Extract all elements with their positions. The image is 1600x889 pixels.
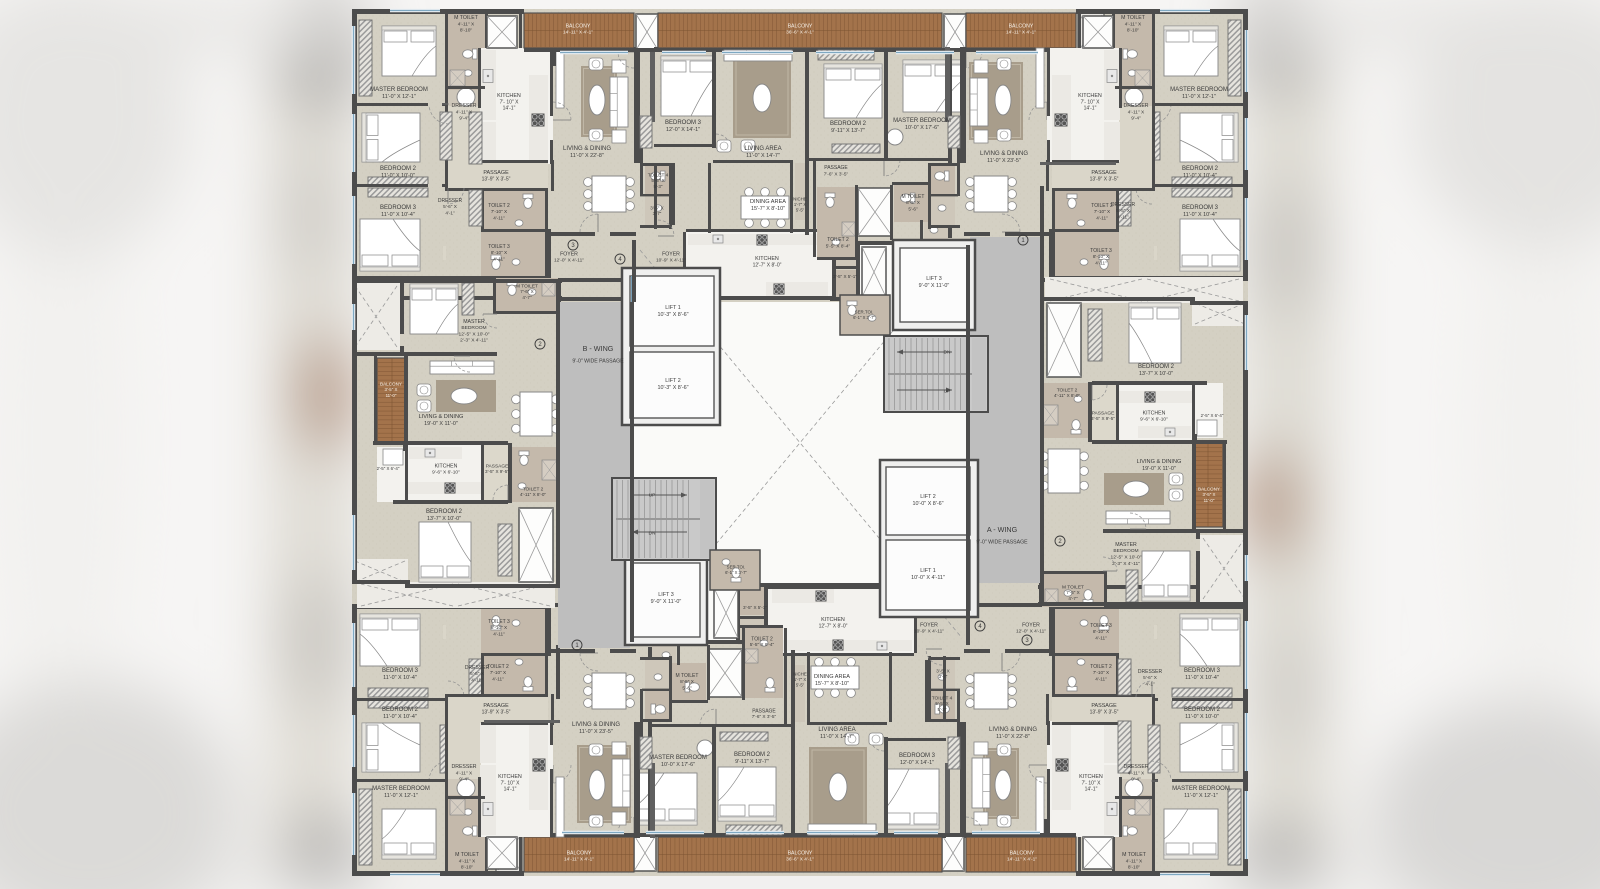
svg-text:14'-1": 14'-1": [504, 787, 517, 793]
svg-text:7'- 10" X: 7'- 10" X: [1082, 780, 1102, 786]
svg-text:5'-5" X 8'-4": 5'-5" X 8'-4": [750, 642, 775, 647]
svg-text:FOYER: FOYER: [920, 622, 938, 628]
svg-text:PASSAGE: PASSAGE: [824, 165, 848, 171]
svg-text:15'-7" X 8'-10": 15'-7" X 8'-10": [751, 206, 785, 212]
svg-text:9'-0" X 11'-0": 9'-0" X 11'-0": [919, 283, 950, 289]
svg-text:7'-6" X: 7'-6" X: [520, 289, 534, 294]
svg-text:14'-11" X 4'-1": 14'-11" X 4'-1": [563, 29, 593, 35]
svg-text:14'-11" X 4'-1": 14'-11" X 4'-1": [564, 856, 594, 862]
svg-text:4'-11" X: 4'-11" X: [1128, 770, 1145, 776]
svg-text:8'-10" X: 8'-10" X: [491, 250, 508, 255]
svg-text:9'-0" WIDE PASSAGE: 9'-0" WIDE PASSAGE: [976, 539, 1028, 545]
svg-text:NICHE: NICHE: [793, 197, 807, 202]
svg-text:7'-6" X: 7'-6" X: [1066, 590, 1080, 595]
svg-text:4'-11": 4'-11": [1095, 635, 1107, 640]
svg-text:1'-7" X: 1'-7" X: [794, 202, 807, 207]
svg-text:4'-1": 4'-1": [1145, 681, 1155, 686]
svg-text:BEDROOM 3: BEDROOM 3: [382, 668, 419, 674]
svg-text:LIVING & DINING: LIVING & DINING: [563, 146, 611, 152]
svg-text:10'-3" X 8'-6": 10'-3" X 8'-6": [657, 312, 688, 318]
svg-text:BALCONY: BALCONY: [566, 23, 591, 29]
svg-text:9'-6" X 6'-10": 9'-6" X 6'-10": [432, 469, 460, 475]
svg-text:10'-9" X 4'-11": 10'-9" X 4'-11": [656, 257, 686, 263]
svg-text:4'-11": 4'-11": [493, 631, 505, 636]
svg-text:BALCONY: BALCONY: [1010, 850, 1035, 856]
svg-text:11'-0" X 10'-0": 11'-0" X 10'-0": [1185, 714, 1219, 720]
svg-text:3'-5" X 9'-5": 3'-5" X 9'-5": [1091, 416, 1115, 421]
svg-text:M TOILET: M TOILET: [1121, 15, 1146, 21]
svg-text:14'-1": 14'-1": [1085, 787, 1098, 793]
svg-text:5'-5": 5'-5": [796, 208, 805, 213]
svg-text:PASSAGE: PASSAGE: [1091, 703, 1117, 709]
svg-text:12'-0" X 4'-11": 12'-0" X 4'-11": [554, 257, 584, 263]
svg-text:9'-0" WIDE PASSAGE: 9'-0" WIDE PASSAGE: [572, 358, 624, 364]
svg-text:11'-0" X 12'-1": 11'-0" X 12'-1": [384, 793, 418, 799]
svg-text:LIVING AREA: LIVING AREA: [744, 146, 781, 152]
svg-text:KITCHEN: KITCHEN: [821, 617, 845, 623]
svg-text:11'-0" X 12'-1": 11'-0" X 12'-1": [1182, 94, 1216, 100]
svg-text:KITCHEN: KITCHEN: [498, 774, 522, 780]
svg-text:BEDROOM 2: BEDROOM 2: [382, 707, 419, 713]
svg-text:8'-10": 8'-10": [461, 864, 474, 870]
svg-text:5'-5": 5'-5": [796, 683, 805, 688]
svg-text:BEDROOM 2: BEDROOM 2: [1184, 707, 1221, 713]
svg-text:11'-0" X 12'-1": 11'-0" X 12'-1": [382, 94, 416, 100]
svg-text:KITCHEN: KITCHEN: [1078, 93, 1102, 99]
svg-text:MASTER: MASTER: [1115, 542, 1137, 548]
svg-text:TOILET 2: TOILET 2: [827, 237, 849, 243]
svg-text:11'-0" X 10'-4": 11'-0" X 10'-4": [1183, 173, 1217, 179]
svg-text:LIFT 1: LIFT 1: [665, 305, 680, 311]
svg-text:4'-7": 4'-7": [1068, 596, 1078, 601]
svg-text:3'-7": 3'-7": [939, 674, 948, 679]
svg-text:3'-5" X: 3'-5" X: [650, 205, 664, 210]
svg-text:LIFT 2: LIFT 2: [665, 378, 680, 384]
svg-text:DINING AREA: DINING AREA: [814, 674, 850, 680]
svg-text:11'-0" X 10'-4": 11'-0" X 10'-4": [1185, 675, 1219, 681]
svg-text:9'-4": 9'-4": [459, 115, 469, 121]
svg-text:3'-5" X 5'-1": 3'-5" X 5'-1": [833, 274, 857, 279]
svg-text:11'-0" X 10'-4": 11'-0" X 10'-4": [383, 675, 417, 681]
svg-text:FOYER: FOYER: [662, 251, 680, 257]
svg-text:BALCONY: BALCONY: [567, 850, 592, 856]
svg-text:UP: UP: [944, 388, 951, 394]
svg-text:4'-11": 4'-11": [1095, 260, 1107, 265]
svg-text:10'-3" X 8'-6": 10'-3" X 8'-6": [657, 385, 688, 391]
svg-text:LIFT 1: LIFT 1: [920, 568, 935, 574]
svg-text:4'-11" X: 4'-11" X: [1128, 109, 1145, 115]
svg-text:9'-0" X 11'-0": 9'-0" X 11'-0": [651, 599, 682, 605]
svg-text:FOYER: FOYER: [1022, 622, 1040, 628]
svg-text:8'-10" X: 8'-10" X: [1093, 254, 1110, 259]
svg-text:PASSAGE: PASSAGE: [483, 703, 509, 709]
svg-text:12'-0" X 4'-11": 12'-0" X 4'-11": [1016, 628, 1046, 634]
svg-text:LIVING & DINING: LIVING & DINING: [572, 722, 620, 728]
svg-text:5'-6": 5'-6": [908, 206, 918, 211]
svg-text:UP: UP: [649, 492, 656, 498]
svg-text:KITCHEN: KITCHEN: [755, 256, 779, 262]
svg-text:MASTER BEDROOM: MASTER BEDROOM: [1170, 87, 1228, 93]
svg-text:8'-10" X: 8'-10" X: [1093, 629, 1110, 634]
svg-text:8'-5" X: 8'-5" X: [906, 200, 921, 205]
svg-text:MASTER BEDROOM: MASTER BEDROOM: [893, 118, 951, 124]
svg-text:BEDROOM: BEDROOM: [461, 325, 486, 331]
svg-text:BEDROOM 3: BEDROOM 3: [899, 753, 936, 759]
svg-text:LIVING & DINING: LIVING & DINING: [1137, 459, 1182, 465]
svg-text:LIVING AREA: LIVING AREA: [818, 727, 855, 733]
svg-text:13'-7" X 10'-0": 13'-7" X 10'-0": [1139, 371, 1173, 377]
svg-text:10'-9" X 4'-11": 10'-9" X 4'-11": [914, 628, 944, 634]
svg-text:4'-1": 4'-1": [445, 210, 455, 215]
svg-text:BALCONY: BALCONY: [1198, 486, 1220, 491]
svg-text:BEDROOM 2: BEDROOM 2: [380, 166, 417, 172]
svg-text:8'-5" X: 8'-5" X: [680, 679, 695, 684]
svg-text:DN: DN: [944, 349, 951, 355]
svg-text:14'-1": 14'-1": [503, 106, 516, 112]
svg-text:15'-7" X 8'-10": 15'-7" X 8'-10": [815, 681, 849, 687]
svg-text:M TOILET: M TOILET: [1122, 852, 1147, 858]
svg-text:9'-11" X 13'-7": 9'-11" X 13'-7": [735, 759, 769, 765]
svg-text:MASTER BEDROOM: MASTER BEDROOM: [370, 87, 428, 93]
svg-text:DRESSER: DRESSER: [1123, 103, 1148, 109]
svg-text:10'-0" X 17'-6": 10'-0" X 17'-6": [661, 762, 695, 768]
svg-text:5'-5" X: 5'-5" X: [935, 701, 948, 706]
svg-text:LIFT 3: LIFT 3: [926, 276, 941, 282]
svg-text:KITCHEN: KITCHEN: [435, 463, 458, 469]
svg-text:3'-5" X 9'-5": 3'-5" X 9'-5": [485, 469, 509, 474]
svg-text:5'-5" X 8'-4": 5'-5" X 8'-4": [826, 243, 851, 248]
svg-text:36'-6" X 4'-1": 36'-6" X 4'-1": [786, 856, 814, 862]
svg-text:BALCONY: BALCONY: [788, 23, 813, 29]
svg-text:BEDROOM 2: BEDROOM 2: [1182, 166, 1219, 172]
svg-text:13'-9" X 3'-5": 13'-9" X 3'-5": [482, 177, 511, 183]
svg-text:BEDROOM 2: BEDROOM 2: [734, 752, 771, 758]
svg-text:14'-11" X 4'-1": 14'-11" X 4'-1": [1007, 856, 1037, 862]
svg-text:12'-5" X 10'-0": 12'-5" X 10'-0": [459, 331, 490, 337]
svg-text:5'-6" X: 5'-6" X: [1143, 675, 1158, 680]
svg-text:BEDROOM 3: BEDROOM 3: [665, 120, 702, 126]
svg-text:KITCHEN: KITCHEN: [1079, 774, 1103, 780]
svg-text:12'-0" X 14'-1": 12'-0" X 14'-1": [666, 127, 700, 133]
svg-text:11'-0" X 10'-4": 11'-0" X 10'-4": [383, 714, 417, 720]
svg-text:5'-3": 5'-3": [654, 184, 663, 189]
svg-text:19'-0" X 11'-0": 19'-0" X 11'-0": [1142, 466, 1176, 472]
svg-text:5'-3": 5'-3": [938, 707, 947, 712]
svg-text:3'-5" X: 3'-5" X: [1203, 492, 1216, 497]
svg-text:4'-11" X: 4'-11" X: [456, 109, 473, 115]
svg-text:5'-6": 5'-6": [682, 685, 692, 690]
svg-text:9'-4": 9'-4": [459, 776, 469, 782]
svg-text:BEDROOM 3: BEDROOM 3: [1184, 668, 1221, 674]
svg-text:11'-0" X 10'-4": 11'-0" X 10'-4": [1183, 212, 1217, 218]
svg-text:SER.TOI.: SER.TOI.: [727, 564, 746, 569]
svg-text:3'-5" X 5'-1": 3'-5" X 5'-1": [743, 605, 767, 610]
svg-text:MASTER BEDROOM: MASTER BEDROOM: [649, 755, 707, 761]
svg-text:11'-0" X 22'-8": 11'-0" X 22'-8": [996, 734, 1030, 740]
svg-text:3'-5" X: 3'-5" X: [385, 387, 398, 392]
svg-text:PASSAGE: PASSAGE: [1091, 170, 1117, 176]
svg-text:8'-10": 8'-10": [1128, 864, 1141, 870]
svg-text:3'-7": 3'-7": [653, 211, 662, 216]
svg-text:11'-0" X 10'-4": 11'-0" X 10'-4": [381, 212, 415, 218]
svg-text:7'-10" X: 7'-10" X: [491, 209, 508, 214]
svg-text:11'-0" X 23'-5": 11'-0" X 23'-5": [579, 729, 613, 735]
svg-text:11'-0" X 12'-1": 11'-0" X 12'-1": [1184, 793, 1218, 799]
svg-text:9'-6" X 6'-10": 9'-6" X 6'-10": [1140, 416, 1168, 422]
svg-text:13'-9" X 3'-5": 13'-9" X 3'-5": [1090, 177, 1119, 183]
svg-text:11'-0" X 10'-0": 11'-0" X 10'-0": [381, 173, 415, 179]
svg-text:14'-1": 14'-1": [1084, 106, 1097, 112]
svg-text:4'-11": 4'-11": [493, 256, 505, 261]
svg-text:M TOILET: M TOILET: [455, 852, 480, 858]
svg-text:4'-11": 4'-11": [493, 215, 505, 220]
svg-text:4'-11": 4'-11": [1096, 215, 1108, 220]
svg-text:11'-0" X 22'-8": 11'-0" X 22'-8": [570, 153, 604, 159]
svg-text:PASSAGE: PASSAGE: [483, 170, 509, 176]
svg-text:4'-11" X: 4'-11" X: [1125, 21, 1142, 27]
svg-text:4'-11": 4'-11": [1117, 214, 1129, 219]
svg-text:12'-5" X 10'-0": 12'-5" X 10'-0": [1111, 554, 1142, 560]
svg-text:BEDROOM 2: BEDROOM 2: [1138, 364, 1175, 370]
svg-text:BEDROOM 2: BEDROOM 2: [426, 509, 463, 515]
svg-text:3'-5" X: 3'-5" X: [936, 668, 950, 673]
svg-text:LIFT 3: LIFT 3: [658, 592, 673, 598]
svg-text:LIVING & DINING: LIVING & DINING: [989, 727, 1037, 733]
svg-text:14'-11" X 4'-1": 14'-11" X 4'-1": [1006, 29, 1036, 35]
svg-text:11'-0": 11'-0": [1204, 498, 1215, 503]
svg-text:5'-5" X: 5'-5" X: [470, 671, 485, 676]
svg-text:7'-10" X: 7'-10" X: [1093, 670, 1110, 675]
svg-text:KITCHEN: KITCHEN: [1143, 410, 1166, 416]
svg-text:NICHE: NICHE: [793, 672, 807, 677]
svg-text:4'-11" X 8'-0": 4'-11" X 8'-0": [1054, 393, 1080, 398]
svg-text:13'-9" X 3'-5": 13'-9" X 3'-5": [482, 710, 511, 716]
svg-text:7'-6" X 3'-5": 7'-6" X 3'-5": [752, 714, 777, 719]
svg-text:4'-11" X: 4'-11" X: [456, 770, 473, 776]
svg-text:11'-0" X 14'-7": 11'-0" X 14'-7": [820, 734, 854, 740]
svg-text:4'-11": 4'-11": [492, 676, 504, 681]
svg-text:FOYER: FOYER: [560, 251, 578, 257]
svg-text:13'-9" X 3'-5": 13'-9" X 3'-5": [1090, 710, 1119, 716]
svg-text:12'-7" X 8'-0": 12'-7" X 8'-0": [819, 624, 848, 630]
svg-text:2'-5" X 6'-4": 2'-5" X 6'-4": [377, 466, 400, 471]
svg-text:6'-1" X 3'-7": 6'-1" X 3'-7": [853, 315, 875, 320]
svg-text:2'-5" X 6'-4": 2'-5" X 6'-4": [1201, 413, 1224, 418]
svg-text:6'-1" X 3'-7": 6'-1" X 3'-7": [725, 570, 747, 575]
svg-text:10'-0" X 8'-6": 10'-0" X 8'-6": [912, 501, 943, 507]
svg-text:DRESSER: DRESSER: [451, 103, 476, 109]
svg-text:8'-10": 8'-10": [460, 27, 473, 33]
svg-text:4'-11": 4'-11": [1095, 676, 1107, 681]
svg-text:MASTER: MASTER: [463, 319, 485, 325]
svg-text:1'-7" X: 1'-7" X: [794, 677, 807, 682]
svg-text:36'-6" X 4'-1": 36'-6" X 4'-1": [786, 29, 814, 35]
svg-text:MASTER BEDROOM: MASTER BEDROOM: [1172, 786, 1230, 792]
svg-text:KITCHEN: KITCHEN: [497, 93, 521, 99]
svg-text:4'-11": 4'-11": [471, 677, 483, 682]
svg-text:4'-11" X: 4'-11" X: [459, 858, 476, 864]
svg-text:10'-0" X 17'-6": 10'-0" X 17'-6": [905, 125, 939, 131]
svg-text:BALCONY: BALCONY: [380, 381, 402, 386]
svg-text:13'-7" X 10'-0": 13'-7" X 10'-0": [427, 516, 461, 522]
svg-text:MASTER BEDROOM: MASTER BEDROOM: [372, 786, 430, 792]
svg-text:9'-4": 9'-4": [1131, 115, 1141, 121]
svg-text:BEDROOM 2: BEDROOM 2: [830, 121, 867, 127]
svg-text:BEDROOM 3: BEDROOM 3: [1182, 205, 1219, 211]
svg-text:M TOILET: M TOILET: [454, 15, 479, 21]
svg-text:DN: DN: [649, 530, 656, 536]
svg-text:5'-5" X: 5'-5" X: [1116, 208, 1131, 213]
svg-text:LIVING & DINING: LIVING & DINING: [419, 414, 464, 420]
svg-text:2'-3" X 4'-11": 2'-3" X 4'-11": [1112, 561, 1140, 567]
svg-text:5'-6" X: 5'-6" X: [443, 204, 458, 209]
svg-text:8'-10" X: 8'-10" X: [491, 625, 508, 630]
svg-text:11'-0": 11'-0": [386, 393, 397, 398]
svg-text:BALCONY: BALCONY: [1009, 23, 1034, 29]
svg-text:7'- 10" X: 7'- 10" X: [501, 780, 521, 786]
svg-text:4'-11" X 8'-0": 4'-11" X 8'-0": [520, 492, 546, 497]
svg-text:5'-5" X: 5'-5" X: [651, 178, 664, 183]
svg-text:9'-4": 9'-4": [1131, 776, 1141, 782]
svg-text:LIFT 2: LIFT 2: [920, 494, 935, 500]
svg-text:DINING AREA: DINING AREA: [750, 199, 786, 205]
svg-text:SER.TOI.: SER.TOI.: [855, 309, 874, 314]
svg-text:2'-3" X 4'-11": 2'-3" X 4'-11": [460, 338, 488, 344]
svg-text:DRESSER: DRESSER: [1123, 764, 1148, 770]
svg-text:10'-0" X 4'-11": 10'-0" X 4'-11": [911, 575, 945, 581]
svg-text:A - WING: A - WING: [987, 525, 1018, 534]
svg-text:7'- 10" X: 7'- 10" X: [500, 99, 520, 105]
svg-text:BEDROOM: BEDROOM: [1113, 548, 1138, 554]
svg-text:BEDROOM 3: BEDROOM 3: [380, 205, 417, 211]
svg-text:7'-6" X 3'-5": 7'-6" X 3'-5": [824, 171, 849, 176]
svg-text:12'-7" X 8'-0": 12'-7" X 8'-0": [753, 263, 782, 269]
svg-text:4'-7": 4'-7": [522, 295, 532, 300]
svg-text:11'-0" X 23'-5": 11'-0" X 23'-5": [987, 158, 1021, 164]
svg-text:19'-0" X 11'-0": 19'-0" X 11'-0": [424, 421, 458, 427]
svg-text:LIVING & DINING: LIVING & DINING: [980, 151, 1028, 157]
svg-text:BALCONY: BALCONY: [788, 850, 813, 856]
svg-text:4'-11" X: 4'-11" X: [1126, 858, 1143, 864]
svg-text:9'-11" X 13'-7": 9'-11" X 13'-7": [831, 128, 865, 134]
svg-text:8'-10": 8'-10": [1127, 27, 1140, 33]
svg-text:DRESSER: DRESSER: [451, 764, 476, 770]
svg-text:7'- 10" X: 7'- 10" X: [1081, 99, 1101, 105]
svg-text:11'-0" X 14'-7": 11'-0" X 14'-7": [746, 153, 780, 159]
svg-text:4'-11" X: 4'-11" X: [458, 21, 475, 27]
svg-text:7'-10" X: 7'-10" X: [1094, 209, 1111, 214]
svg-text:B - WING: B - WING: [583, 344, 614, 353]
svg-text:12'-0" X 14'-1": 12'-0" X 14'-1": [900, 760, 934, 766]
svg-text:7'-10" X: 7'-10" X: [490, 670, 507, 675]
